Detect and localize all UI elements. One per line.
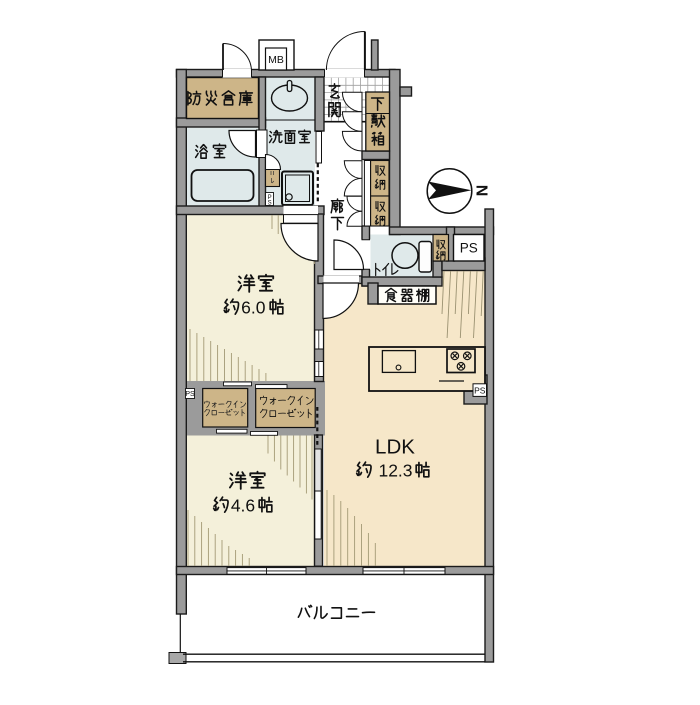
svg-text:PS: PS (474, 385, 486, 395)
svg-text:S: S (268, 201, 272, 207)
svg-text:6.0: 6.0 (241, 297, 266, 317)
svg-text:PS: PS (460, 241, 478, 256)
svg-text:PS: PS (185, 391, 195, 398)
svg-text:12.3: 12.3 (378, 460, 412, 480)
svg-text:MB: MB (268, 54, 284, 66)
svg-text:4.6: 4.6 (231, 495, 255, 515)
svg-text:LDK: LDK (375, 436, 415, 459)
svg-text:N: N (473, 185, 490, 197)
